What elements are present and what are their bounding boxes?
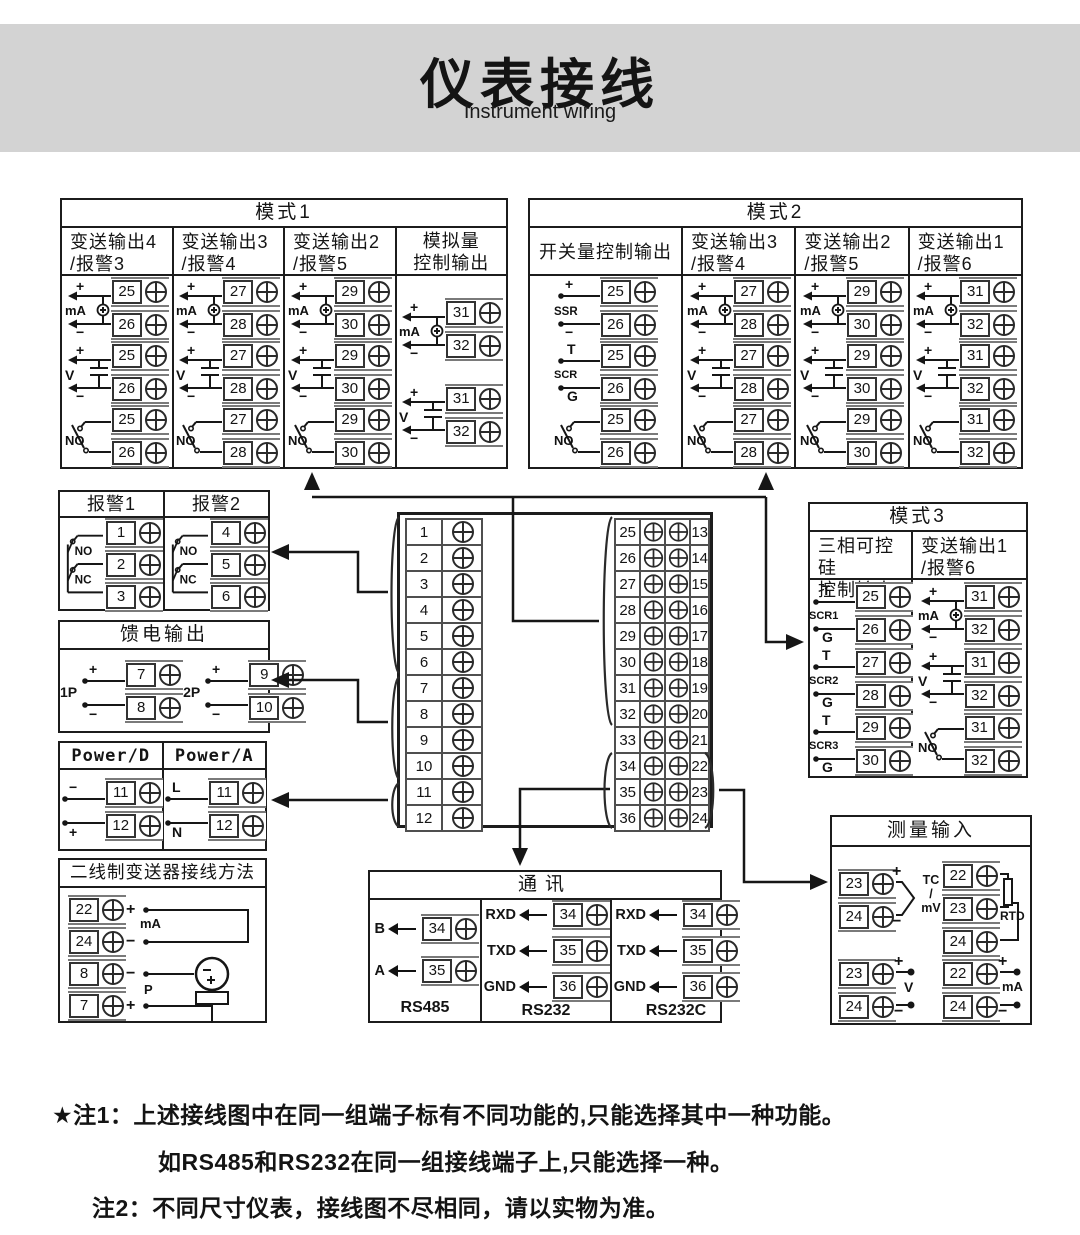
symbol-label: T [822, 650, 831, 663]
feed-group-0: 1P +− 7 8 [60, 660, 183, 723]
symbol-label: − [187, 388, 195, 402]
scr-symbol: TSCR3G [809, 715, 855, 773]
screw-terminal-icon [766, 313, 790, 337]
terminal: 29 [855, 713, 913, 743]
screw-terminal-icon [478, 387, 502, 411]
screw-terminal-icon [668, 546, 689, 570]
screw-terminal-icon [879, 344, 903, 368]
terminal: 24 [838, 992, 896, 1022]
symbol-label: mA [288, 303, 310, 318]
no-symbol: NO [913, 408, 959, 466]
screw-terminal-icon [643, 520, 664, 544]
screw-terminal-icon [158, 663, 182, 687]
left-arrow-icon [521, 950, 547, 952]
terminal-number: 2 [106, 553, 136, 577]
wiring-diagram: TSCRG 25 26 [554, 341, 658, 404]
terminal: 35 [552, 936, 610, 966]
terminal-number: 32 [965, 749, 995, 773]
terminal-number: 15 [691, 576, 708, 593]
terminal-number: 32 [965, 618, 995, 642]
symbol-label: − [698, 324, 706, 338]
terminal-number: 25 [619, 524, 636, 541]
screw-terminal-icon [255, 377, 279, 401]
symbol-label: − [76, 324, 84, 338]
terminal-stack: 25 26 [600, 277, 658, 340]
screw-terminal-icon [243, 553, 267, 577]
symbol-label: + [187, 280, 195, 294]
polarity-sign: + [998, 953, 1007, 971]
tc-mv-label: TC / mV [918, 873, 944, 915]
symbol-label: + [410, 301, 418, 315]
left-arrow-icon [390, 928, 416, 930]
center-row-left: 12 [405, 804, 483, 832]
terminal: 28 [222, 310, 280, 340]
screw-terminal-icon [643, 780, 664, 804]
screw-terminal-icon [888, 585, 912, 609]
column-body: +mA− 27 28 +V− 27 28 NO 27 28 [683, 276, 794, 469]
mode1-column-2: 变送输出2 /报警5 +mA− 29 30 +V− 29 30 NO 29 30 [285, 228, 397, 469]
terminal: 29 [846, 341, 904, 371]
symbol-label: NO [918, 740, 938, 755]
terminal-number: 26 [112, 377, 142, 401]
screw-terminal-icon [158, 696, 182, 720]
screw-terminal-icon [871, 962, 895, 986]
symbol-label: + [924, 344, 932, 358]
symbol-label: G [822, 694, 833, 708]
center-row-right: 29 17 [614, 622, 710, 650]
mode3-column-0: 三相可控硅 控制输出 TSCR1G 25 26 TSCR2G 27 28 TSC… [810, 532, 913, 778]
no-symbol: NO [65, 408, 111, 466]
screw-terminal-icon [451, 624, 475, 648]
no-symbol: NO [687, 408, 733, 466]
ma-symbol: +mA− [176, 280, 222, 338]
symbol-label: NO [913, 433, 933, 448]
screw-terminal-icon [668, 806, 689, 830]
screw-terminal-icon [241, 814, 265, 838]
ma-symbol: +mA− [65, 280, 111, 338]
terminal-number: 24 [691, 810, 708, 827]
wiring-diagram: +mA− 31 32 [918, 582, 1022, 645]
screw-terminal-icon [255, 313, 279, 337]
v-symbol: +V− [913, 344, 959, 402]
ssr-symbol: +SSR− [554, 280, 600, 338]
terminal-stack: 25 26 [600, 341, 658, 404]
center-row-left: 11 [405, 778, 483, 806]
screw-terminal-icon [975, 962, 999, 986]
communication-box: 通讯 B 34 A 35 RS485 RXD 34 TXD [368, 870, 722, 1023]
terminal: 27 [222, 405, 280, 435]
screw-terminal-icon [478, 301, 502, 325]
screw-terminal-icon [281, 696, 305, 720]
screw-terminal-icon [888, 749, 912, 773]
terminal-number: 11 [106, 781, 136, 805]
screw-terminal-icon [451, 780, 475, 804]
terminal-number: 32 [446, 420, 476, 444]
screw-terminal-icon [281, 663, 305, 687]
power-header: Power/A [164, 743, 266, 770]
terminal-stack: 31 32 [959, 277, 1017, 340]
terminal: 28 [855, 681, 913, 711]
terminal-number: 32 [446, 334, 476, 358]
center-row-right: 31 19 [614, 674, 710, 702]
screw-terminal-icon [997, 716, 1021, 740]
symbol-label: V [800, 367, 810, 383]
column-header: 变送输出4 /报警3 [62, 228, 172, 276]
terminal-stack: 11 12 [208, 778, 266, 841]
terminal-number: 5 [420, 628, 428, 645]
terminal-number: 34 [553, 903, 583, 927]
terminal-number: 35 [422, 959, 452, 983]
screw-terminal-icon [243, 585, 267, 609]
symbol-label: − [212, 706, 220, 721]
column-body: +mA− 31 32 +V− 31 32 NO 31 32 [913, 580, 1026, 778]
terminal: 9 [248, 660, 306, 690]
no-symbol: NO [176, 408, 222, 466]
terminal-number: 1 [106, 521, 136, 545]
terminal: 28 [733, 310, 791, 340]
symbol-label: V [913, 367, 923, 383]
pwr-symbol: +− [79, 663, 125, 721]
terminal-number: 18 [691, 654, 708, 671]
mode2-column-0: 开关量控制输出 +SSR− 25 26 TSCRG 25 26 NO 25 26 [530, 228, 683, 469]
comm-signal-row: GND 36 [612, 972, 740, 1002]
symbol-label: NO [176, 433, 196, 448]
power-body: LN 11 12 [164, 770, 266, 849]
rtd-terminal-22: 22 [942, 861, 1000, 891]
terminal-number: 35 [683, 939, 713, 963]
left-arrow-icon [521, 986, 547, 988]
symbol-label: V [687, 367, 697, 383]
terminal-number: 12 [416, 810, 433, 827]
terminal: 24 [838, 902, 896, 932]
center-row-left: 7 [405, 674, 483, 702]
measure-body: 23 24 +−TC / mV 22 23 24 RTD 23 24 +−V 2… [832, 847, 1030, 1025]
terminal: 28 [222, 374, 280, 404]
terminal-number: 28 [734, 377, 764, 401]
terminal-number: 27 [223, 408, 253, 432]
terminal-stack: 25 26 [111, 341, 169, 404]
column-header: 开关量控制输出 [530, 228, 681, 276]
terminal: 11 [105, 778, 163, 808]
v-symbol: +V− [399, 386, 445, 444]
terminal: 23 [838, 959, 896, 989]
screw-terminal-icon [585, 903, 609, 927]
terminal: 32 [959, 374, 1017, 404]
terminal-number: 10 [416, 758, 433, 775]
screw-terminal-icon [997, 749, 1021, 773]
terminal-number: 23 [943, 897, 973, 921]
screw-terminal-icon [766, 441, 790, 465]
terminal-number: 30 [619, 654, 636, 671]
symbol-label: − [924, 388, 932, 402]
screw-terminal-icon [879, 441, 903, 465]
terminal: 23 [942, 894, 1000, 924]
signal-label: TXD [482, 943, 516, 959]
wiring-diagram: NO 27 28 [176, 405, 280, 468]
terminal-number: 25 [112, 344, 142, 368]
comm-signal-row: GND 36 [482, 972, 610, 1002]
terminal: 25 [855, 582, 913, 612]
polarity-sign: − [892, 913, 901, 931]
screw-terminal-icon [138, 781, 162, 805]
terminal-number: 8 [420, 706, 428, 723]
screw-terminal-icon [367, 377, 391, 401]
screw-terminal-icon [367, 408, 391, 432]
screw-terminal-icon [144, 408, 168, 432]
terminal: 28 [733, 374, 791, 404]
comm-standard-name: RS485 [370, 999, 480, 1023]
terminal-stack: 29 30 [334, 341, 392, 404]
left-arrow-icon [651, 986, 677, 988]
terminal-number: 24 [839, 905, 869, 929]
wiring-diagram: NO 29 30 [288, 405, 392, 468]
symbol-label: − [811, 324, 819, 338]
terminal-number: 28 [734, 441, 764, 465]
terminal-number: 9 [420, 732, 428, 749]
terminal-number: 28 [619, 602, 636, 619]
terminal: 32 [964, 746, 1022, 776]
terminal: 31 [964, 582, 1022, 612]
terminal: 1 [105, 518, 163, 548]
v-terminal-24: 24 [838, 992, 896, 1022]
terminal: 32 [964, 681, 1022, 711]
symbol-label: − [929, 629, 937, 643]
screw-terminal-icon [879, 408, 903, 432]
signal-label: GND [612, 979, 646, 995]
screw-terminal-icon [451, 598, 475, 622]
terminal-number: 35 [553, 939, 583, 963]
screw-terminal-icon [879, 280, 903, 304]
rtd-terminal-23: 23 [942, 894, 1000, 924]
wiring-diagram: +mA− 31 32 [913, 277, 1017, 340]
symbol-label: − [299, 324, 307, 338]
mode1-box: 模式1 变送输出4 /报警3 +mA− 25 26 +V− 25 26 NO 2… [60, 198, 508, 469]
comm-standard-name: RS232C [612, 1002, 740, 1023]
terminal-number: 26 [601, 313, 631, 337]
symbol-label: NO [65, 433, 85, 448]
screw-terminal-icon [975, 995, 999, 1019]
terminal: 25 [111, 277, 169, 307]
column-body: +mA− 29 30 +V− 29 30 NO 29 30 [285, 276, 395, 469]
feed-body: 1P +− 7 8 2P +− 9 10 [60, 650, 268, 733]
screw-terminal-icon [879, 377, 903, 401]
terminal-stack: 27 28 [733, 405, 791, 468]
terminal-number: 28 [223, 377, 253, 401]
terminal: 25 [111, 405, 169, 435]
alarm-box: 报警1 NO NC 1 2 3 报警2 [58, 490, 270, 611]
terminal-number: 29 [335, 344, 365, 368]
terminal-stack: 27 28 [733, 277, 791, 340]
terminal-stack: 25 26 [111, 277, 169, 340]
terminal-number: 30 [335, 377, 365, 401]
terminal-number: 27 [734, 280, 764, 304]
screw-terminal-icon [451, 650, 475, 674]
polarity-sign: − [894, 1003, 903, 1021]
terminal-number: 29 [856, 716, 886, 740]
terminal-stack: 31 32 [445, 298, 503, 361]
terminal: 29 [846, 277, 904, 307]
mode2-title: 模式2 [530, 200, 1021, 228]
terminal-number: 26 [112, 441, 142, 465]
screw-terminal-icon [451, 520, 475, 544]
terminal-number: 22 [943, 864, 973, 888]
symbol-label: SCR2 [809, 675, 838, 687]
column-header: 变送输出2 /报警5 [796, 228, 907, 276]
v-label: V [904, 979, 913, 995]
terminal-number: 4 [420, 602, 428, 619]
symbol-label: + [299, 344, 307, 358]
terminal-stack: 27 28 [222, 405, 280, 468]
ma-symbol: +mA− [913, 280, 959, 338]
terminal-number: 29 [847, 344, 877, 368]
left-arrow-icon [521, 914, 547, 916]
terminal-stack: 7 8 [125, 660, 183, 723]
terminal-number: 9 [249, 663, 279, 687]
symbol-label: + [565, 280, 573, 292]
terminal: 6 [210, 582, 268, 612]
wiring-diagram: NO 25 26 [554, 405, 658, 468]
screw-terminal-icon [992, 408, 1016, 432]
center-row-right: 30 18 [614, 648, 710, 676]
screw-terminal-icon [138, 814, 162, 838]
terminal: 35 [682, 936, 740, 966]
screw-terminal-icon [997, 585, 1021, 609]
wiring-diagram-page: 仪表接线 Instrument wiring 模式1 变送输出4 /报警3 +m… [0, 0, 1080, 1235]
screw-terminal-icon [668, 598, 689, 622]
signal-label: TXD [612, 943, 646, 959]
feed-group-label: 1P [60, 684, 77, 700]
terminal-number: 30 [847, 377, 877, 401]
symbol-label: V [176, 367, 186, 383]
screw-terminal-icon [138, 585, 162, 609]
feed-group-label: 2P [183, 684, 200, 700]
terminal: 2 [105, 550, 163, 580]
screw-terminal-icon [144, 313, 168, 337]
symbol-label: L [172, 781, 181, 795]
terminal: 31 [964, 648, 1022, 678]
wiring-diagram: +mA− 25 26 [65, 277, 169, 340]
screw-terminal-icon [451, 572, 475, 596]
terminal-number: 32 [960, 313, 990, 337]
terminal-number: 31 [446, 301, 476, 325]
screw-terminal-icon [243, 521, 267, 545]
terminal-number: 7 [420, 680, 428, 697]
terminal-stack: 9 10 [248, 660, 306, 723]
symbol-label: + [929, 585, 937, 599]
terminal-number: 25 [601, 280, 631, 304]
no-symbol: NO [800, 408, 846, 466]
terminal-number: 27 [223, 280, 253, 304]
wiring-diagram: NO 27 28 [687, 405, 791, 468]
screw-terminal-icon [633, 441, 657, 465]
pwr-symbol: +− [202, 663, 248, 721]
terminal-stack: 29 30 [846, 341, 904, 404]
wiring-diagram: +mA− 27 28 [687, 277, 791, 340]
pwr-symbol: −+ [59, 781, 105, 839]
terminal-number: 13 [691, 524, 708, 541]
terminal: 32 [445, 331, 503, 361]
wiring-diagram: +V− 25 26 [65, 341, 169, 404]
screw-terminal-icon [255, 441, 279, 465]
terminal: 31 [445, 298, 503, 328]
terminal: 31 [959, 277, 1017, 307]
screw-terminal-icon [585, 939, 609, 963]
terminal-number: 12 [106, 814, 136, 838]
ma-symbol: +mA− [399, 301, 445, 359]
screw-terminal-icon [451, 806, 475, 830]
terminal: 31 [964, 713, 1022, 743]
screw-terminal-icon [144, 377, 168, 401]
screw-terminal-icon [997, 618, 1021, 642]
comm-section-1: RXD 34 TXD 35 GND 36 RS232 [482, 900, 612, 1023]
v-symbol: +V− [800, 344, 846, 402]
terminal: 27 [733, 277, 791, 307]
screw-terminal-icon [633, 344, 657, 368]
symbol-label: − [89, 706, 97, 721]
symbol-label: − [924, 324, 932, 338]
comm-signal-row: TXD 35 [612, 936, 740, 966]
terminal-number: 26 [601, 377, 631, 401]
terminal-stack: 25 26 [855, 582, 913, 645]
screw-terminal-icon [144, 280, 168, 304]
screw-terminal-icon [766, 408, 790, 432]
symbol-label: + [698, 344, 706, 358]
mode2-columns: 开关量控制输出 +SSR− 25 26 TSCRG 25 26 NO 25 26… [530, 228, 1021, 469]
alarm-body: NO NC 4 5 6 [165, 518, 268, 612]
terminal-number: 23 [691, 784, 708, 801]
terminal-number: 14 [691, 550, 708, 567]
no-symbol: NO [554, 408, 600, 466]
mode1-columns: 变送输出4 /报警3 +mA− 25 26 +V− 25 26 NO 25 26… [62, 228, 506, 469]
symbol-label: SCR3 [809, 740, 838, 752]
terminal: 22 [942, 861, 1000, 891]
terminal-number: 34 [422, 917, 452, 941]
terminal-number: 19 [691, 680, 708, 697]
terminal-number: 31 [960, 408, 990, 432]
screw-terminal-icon [992, 377, 1016, 401]
screw-terminal-icon [144, 344, 168, 368]
symbol-label: − [76, 388, 84, 402]
mode1-column-1: 变送输出3 /报警4 +mA− 27 28 +V− 27 28 NO 27 28 [174, 228, 286, 469]
terminal-number: 27 [619, 576, 636, 593]
terminal-number: 25 [601, 344, 631, 368]
power-column-0: Power/D −+ 11 12 [60, 743, 164, 849]
column-body: +mA− 25 26 +V− 25 26 NO 25 26 [62, 276, 172, 469]
symbol-label: − [299, 388, 307, 402]
terminal: 31 [959, 341, 1017, 371]
screw-terminal-icon [633, 313, 657, 337]
rtd-label: RTD [1000, 909, 1025, 923]
measure-input-box: 测量输入 23 24 +−TC / mV 22 23 [830, 815, 1032, 1025]
terminal-number: 5 [211, 553, 241, 577]
screw-terminal-icon [367, 280, 391, 304]
tc-terminal-23: 23 [838, 869, 896, 899]
terminal: 36 [552, 972, 610, 1002]
symbol-label: + [929, 650, 937, 664]
symbol-label: mA [65, 303, 87, 318]
terminal-stack: 31 32 [964, 713, 1022, 776]
feed-group-1: 2P +− 9 10 [183, 660, 306, 723]
v-symbol: +V− [918, 650, 964, 708]
center-row-right: 35 23 [614, 778, 710, 806]
center-row-right: 33 21 [614, 726, 710, 754]
wiring-diagram: +V− 27 28 [687, 341, 791, 404]
terminal-number: 30 [335, 313, 365, 337]
column-header: 变送输出3 /报警4 [174, 228, 284, 276]
symbol-label: − [929, 694, 937, 708]
note-2: 注2：不同尺寸仪表，接线图不尽相同，请以实物为准。 [92, 1189, 669, 1223]
note-1: ★注1：上述接线图中在同一组端子标有不同功能的,只能选择其中一种功能。 [52, 1096, 845, 1130]
